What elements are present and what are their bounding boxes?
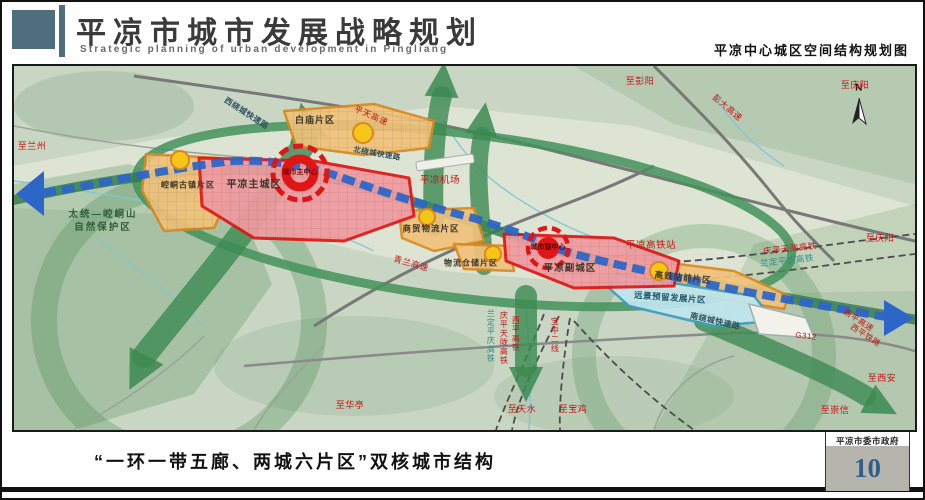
direction-to-lanzhou: 至兰州 bbox=[18, 142, 47, 152]
logo-square bbox=[12, 10, 55, 49]
page-number: 10 bbox=[854, 453, 881, 484]
direction-to-pengyang: 至彭阳 bbox=[626, 77, 655, 87]
railway-baozhong-line-vertical: 宝中二线 bbox=[550, 317, 559, 353]
district-baimiao-label: 白庙片区 bbox=[295, 116, 335, 126]
railway-xiping-hsr-vertical: 西平高铁 bbox=[511, 316, 520, 352]
agency-box: 平凉市委市政府 10 bbox=[825, 432, 910, 491]
structure-caption: “一环一带五廊、两城六片区”双核城市结构 bbox=[94, 448, 496, 474]
direction-to-tianshui: 至天水 bbox=[508, 405, 537, 415]
header: 平凉市城市发展战略规划 Strategic planning of urban … bbox=[2, 2, 925, 64]
direction-to-baoji: 至宝鸡 bbox=[559, 405, 588, 415]
district-kongtong-town-label: 崆峒古镇片区 bbox=[161, 182, 215, 191]
sub-core-label: 城市副中心 bbox=[531, 244, 566, 252]
district-warehouse-label: 物流仓储片区 bbox=[444, 260, 498, 269]
direction-to-huating: 至华亭 bbox=[336, 401, 365, 411]
footer: “一环一带五廊、两城六片区”双核城市结构 平凉市委市政府 10 bbox=[2, 432, 925, 492]
airport-label: 平凉机场 bbox=[420, 176, 460, 186]
document-title-english: Strategic planning of urban development … bbox=[80, 44, 448, 55]
nature-reserve-label-2: 自然保护区 bbox=[74, 223, 132, 233]
district-main-city-label: 平凉主城区 bbox=[227, 180, 282, 191]
agency-name: 平凉市委市政府 bbox=[826, 432, 909, 446]
railway-qingping-hsr-vertical: 庆平天陇高铁 bbox=[499, 311, 508, 365]
hsr-station-label: 平凉高铁站 bbox=[626, 241, 676, 251]
main-core-label: 城市主中心 bbox=[283, 169, 318, 177]
railway-landing-hsr-vertical: 兰定平庆高铁 bbox=[486, 309, 495, 363]
district-trade-logistics-label: 商贸物流片区 bbox=[402, 224, 459, 233]
direction-to-qingyang-right: 至庆阳 bbox=[866, 234, 895, 244]
plan-document-page: 平凉市城市发展战略规划 Strategic planning of urban … bbox=[0, 0, 925, 500]
direction-to-chongxin: 至崇信 bbox=[821, 406, 850, 416]
page-number-box: 10 bbox=[826, 446, 909, 491]
nature-reserve-label-1: 太统—崆峒山 bbox=[68, 210, 137, 220]
map-sheet-title: 平凉中心城区空间结构规划图 bbox=[714, 40, 909, 59]
direction-to-xian: 至西安 bbox=[868, 374, 897, 384]
logo-divider-bar bbox=[59, 5, 65, 57]
map-panel: N 至兰州 至彭阳 至庆阳 至庆阳 至西安 至崇信 至华亭 至天水 至宝鸡 西绕… bbox=[12, 64, 917, 432]
direction-to-qingyang-top: 至庆阳 bbox=[841, 81, 870, 91]
district-sub-city-label: 平凉副城区 bbox=[544, 264, 597, 274]
